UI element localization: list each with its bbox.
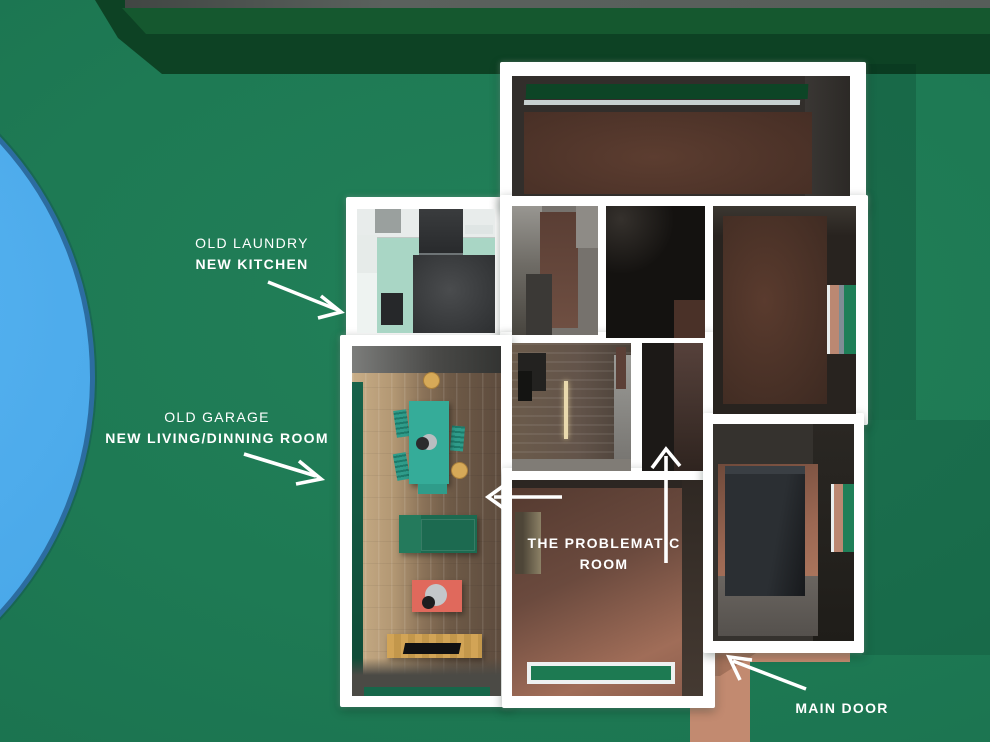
room-top-bedroom <box>512 76 850 196</box>
dining-chair-left-2 <box>393 452 410 481</box>
label-old-laundry-line2: NEW KITCHEN <box>152 254 352 275</box>
top-room-window-sill <box>524 100 800 105</box>
br-wardrobe-top <box>725 466 805 474</box>
dining-chair-right <box>450 425 465 451</box>
hall-darker-box <box>518 371 532 401</box>
stool-bottom <box>451 462 468 479</box>
label-old-laundry-line1: OLD LAUNDRY <box>152 233 352 254</box>
room-right-bedroom <box>713 206 856 414</box>
label-main-door: MAIN DOOR <box>762 698 922 719</box>
hall-brown-strip <box>616 347 626 389</box>
kitchen-shelf-right <box>465 225 493 234</box>
hedge-roof-strip <box>125 0 990 8</box>
stool-top <box>423 372 440 389</box>
bathroom-gray-top-right <box>576 206 598 248</box>
kitchen-island <box>413 255 495 333</box>
kitchen-counter-left-low <box>357 273 377 333</box>
top-room-floor <box>524 112 812 194</box>
problematic-terrace-window <box>527 662 675 684</box>
br-window-green <box>843 484 854 552</box>
right-room-floor <box>723 216 827 404</box>
living-left-green-wall <box>352 382 363 682</box>
problematic-right-wall <box>682 480 703 696</box>
room-bathroom <box>512 206 598 335</box>
room-living <box>352 346 501 696</box>
room-middle-hall <box>512 343 631 471</box>
dark-room-brown-floor <box>674 300 705 338</box>
kitchen-cabinet-gray <box>375 209 401 233</box>
label-old-garage: OLD GARAGE NEW LIVING/DINNING ROOM <box>82 407 352 449</box>
sofa <box>399 515 477 553</box>
narrow-room-brown-wall <box>674 343 703 471</box>
right-room-window <box>827 285 856 354</box>
dining-bench <box>418 484 447 494</box>
kitchen-fridge <box>381 293 403 325</box>
living-bottom-window-green <box>364 687 490 696</box>
room-narrow <box>642 343 703 471</box>
sofa-seat-line <box>421 519 475 551</box>
top-room-window-strip <box>526 84 809 99</box>
hall-bottom-strip <box>512 459 631 471</box>
dining-table-plate-dark <box>416 437 429 450</box>
br-wardrobe <box>725 466 805 596</box>
right-window-salmon <box>830 285 839 354</box>
arrow-garage-head <box>296 461 321 484</box>
dining-chair-left-1 <box>393 409 410 438</box>
label-old-laundry: OLD LAUNDRY NEW KITCHEN <box>152 233 352 275</box>
pool <box>0 25 95 729</box>
br-window <box>831 484 854 552</box>
label-old-garage-line1: OLD GARAGE <box>82 407 352 428</box>
kitchen-hood <box>419 209 463 259</box>
coffee-table-bowl <box>422 596 435 609</box>
right-window-green <box>844 285 856 354</box>
room-problematic <box>512 480 703 696</box>
label-problematic-line2: ROOM <box>494 554 714 575</box>
label-problematic-room: THE PROBLEMATIC ROOM <box>494 533 714 575</box>
arrow-kitchen-head <box>318 296 341 318</box>
br-window-salmon <box>834 484 843 552</box>
arrow-kitchen <box>268 282 338 310</box>
tv <box>403 643 461 654</box>
label-old-garage-line2: NEW LIVING/DINNING ROOM <box>82 428 352 449</box>
room-bottom-right <box>713 424 854 641</box>
label-main-door-text: MAIN DOOR <box>762 698 922 719</box>
bathroom-dark-box <box>526 274 552 335</box>
arrow-garage <box>244 454 316 476</box>
room-kitchen <box>357 209 495 333</box>
house-shadow-corner <box>862 420 990 655</box>
room-dark-closet <box>606 206 705 338</box>
house-shadow-right <box>860 64 916 420</box>
floorplan-render: OLD LAUNDRY NEW KITCHEN OLD GARAGE NEW L… <box>0 0 990 742</box>
hall-light-strip <box>564 381 568 439</box>
sofa-cushion <box>399 515 421 553</box>
label-problematic-line1: THE PROBLEMATIC <box>494 533 714 554</box>
living-top-beam <box>352 346 501 373</box>
problematic-top-edge <box>512 480 703 488</box>
